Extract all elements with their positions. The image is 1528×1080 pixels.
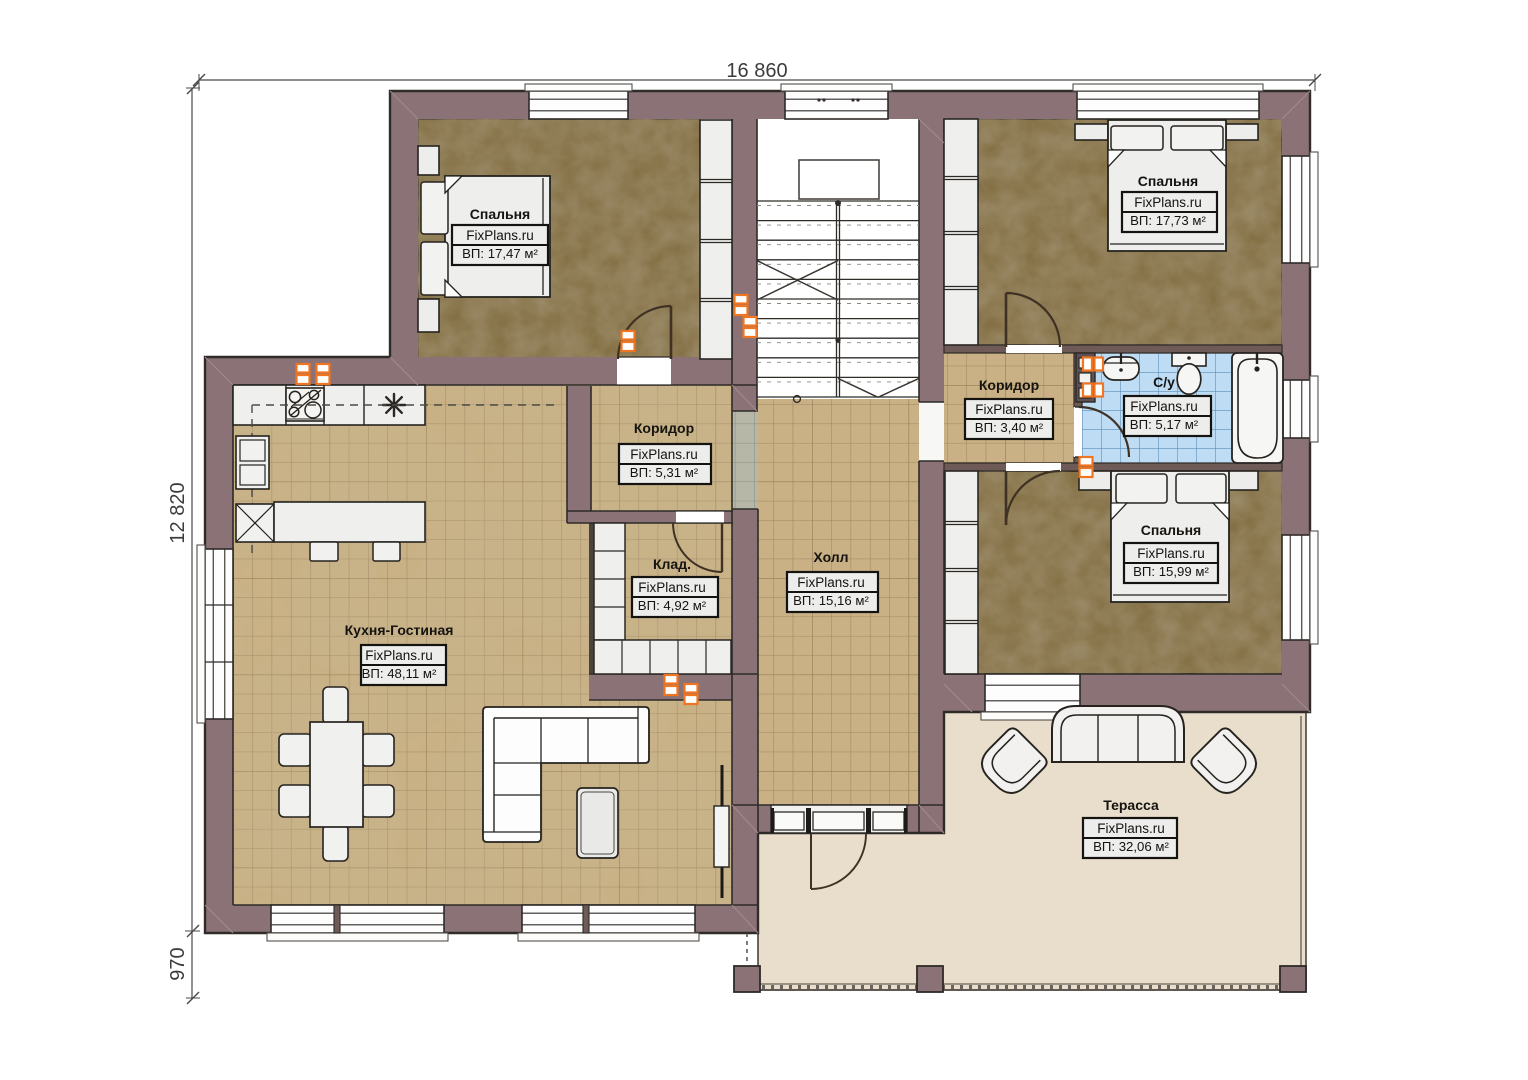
svg-text:FixPlans.ru: FixPlans.ru	[975, 402, 1043, 417]
svg-text:С/у: С/у	[1153, 374, 1175, 390]
svg-text:FixPlans.ru: FixPlans.ru	[466, 228, 534, 243]
svg-text:ВП: 15,16 м²: ВП: 15,16 м²	[793, 593, 869, 608]
svg-text:Клад.: Клад.	[653, 556, 691, 572]
svg-text:FixPlans.ru: FixPlans.ru	[630, 447, 698, 462]
svg-text:ВП: 3,40 м²: ВП: 3,40 м²	[975, 420, 1044, 435]
svg-text:970: 970	[167, 947, 189, 980]
svg-text:Спальня: Спальня	[470, 206, 530, 222]
svg-text:FixPlans.ru: FixPlans.ru	[1097, 821, 1165, 836]
svg-text:Коридор: Коридор	[979, 377, 1039, 393]
svg-text:FixPlans.ru: FixPlans.ru	[1134, 195, 1202, 210]
svg-text:ВП: 17,47 м²: ВП: 17,47 м²	[462, 246, 538, 261]
svg-text:ВП: 5,31 м²: ВП: 5,31 м²	[630, 465, 699, 480]
svg-text:ВП: 48,11 м²: ВП: 48,11 м²	[362, 666, 437, 681]
svg-text:FixPlans.ru: FixPlans.ru	[1137, 546, 1205, 561]
svg-text:ВП: 32,06 м²: ВП: 32,06 м²	[1093, 839, 1169, 854]
svg-text:12 820: 12 820	[167, 482, 189, 543]
svg-text:FixPlans.ru: FixPlans.ru	[797, 575, 865, 590]
svg-text:Коридор: Коридор	[634, 420, 694, 436]
svg-text:Спальня: Спальня	[1141, 522, 1201, 538]
svg-text:Спальня: Спальня	[1138, 173, 1198, 189]
svg-text:ВП: 4,92 м²: ВП: 4,92 м²	[638, 598, 707, 613]
svg-text:Холл: Холл	[813, 549, 848, 565]
svg-text:16 860: 16 860	[726, 60, 787, 82]
svg-text:FixPlans.ru: FixPlans.ru	[638, 580, 706, 595]
svg-text:Кухня-Гостиная: Кухня-Гостиная	[345, 622, 454, 638]
svg-text:ВП: 17,73 м²: ВП: 17,73 м²	[1130, 213, 1206, 228]
svg-text:ВП: 5,17 м²: ВП: 5,17 м²	[1130, 417, 1199, 432]
svg-text:ВП: 15,99 м²: ВП: 15,99 м²	[1133, 564, 1209, 579]
svg-text:FixPlans.ru: FixPlans.ru	[1130, 399, 1198, 414]
svg-text:FixPlans.ru: FixPlans.ru	[365, 648, 433, 663]
svg-text:Терасса: Терасса	[1103, 797, 1159, 813]
